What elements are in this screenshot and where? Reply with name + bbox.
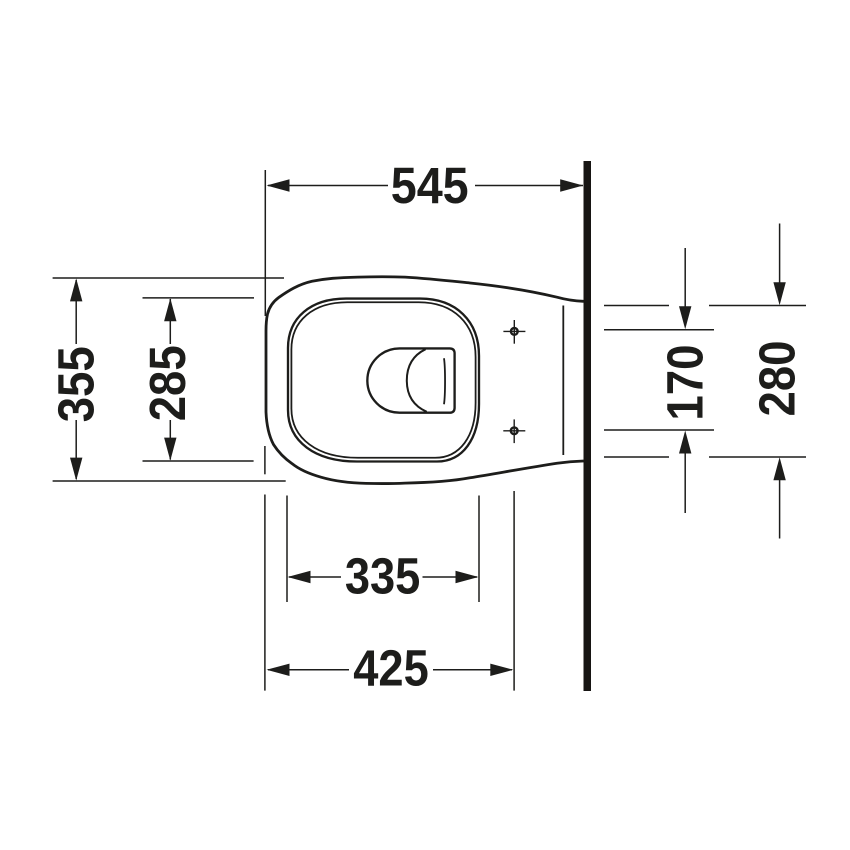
svg-text:545: 545: [391, 157, 469, 214]
svg-text:280: 280: [749, 341, 806, 417]
svg-text:285: 285: [139, 345, 196, 421]
svg-text:425: 425: [353, 639, 429, 696]
svg-text:355: 355: [48, 346, 105, 422]
svg-text:335: 335: [345, 548, 421, 605]
svg-text:170: 170: [656, 345, 713, 421]
